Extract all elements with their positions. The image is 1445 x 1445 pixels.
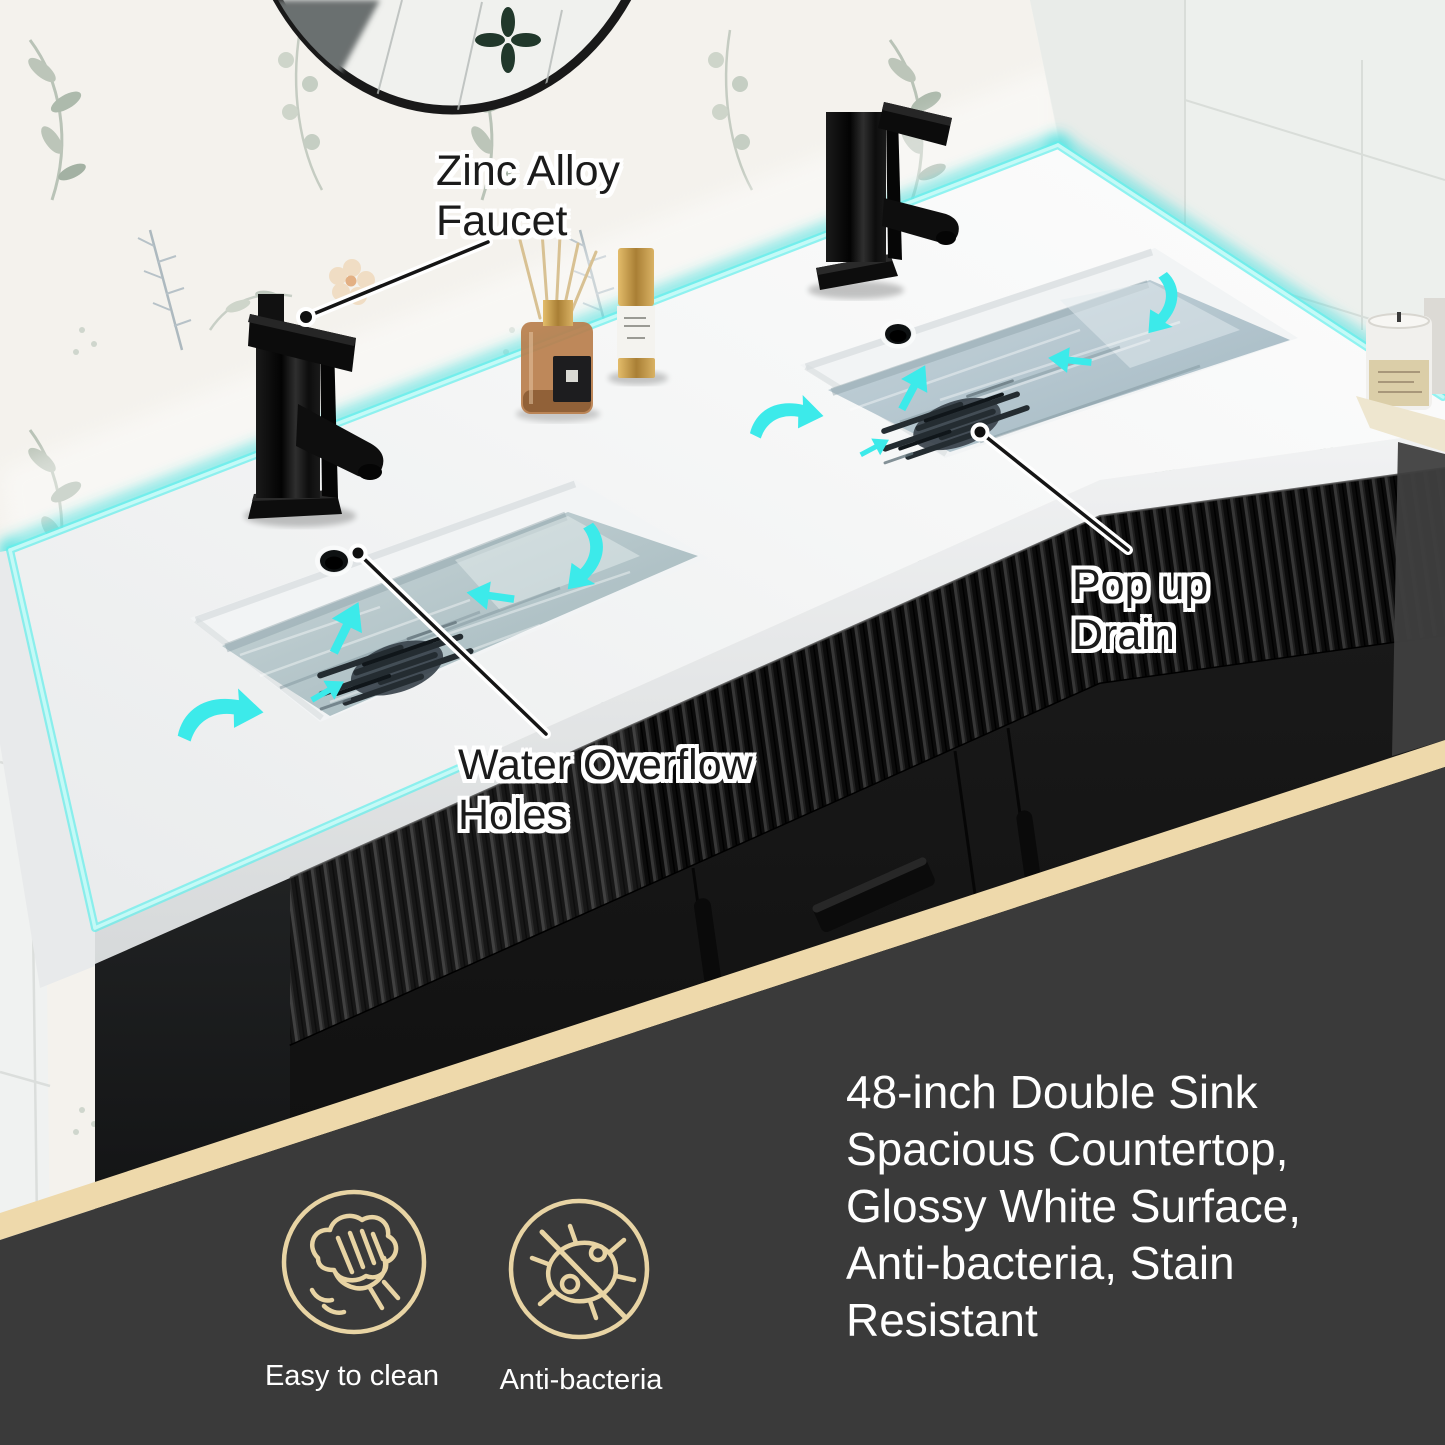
overflow-hole-right — [882, 322, 914, 347]
overflow-hole-left — [317, 548, 351, 575]
leader-dot-overflow — [351, 546, 366, 561]
leader-dot-faucet — [298, 309, 314, 325]
leader-dot-drain — [973, 425, 988, 440]
product-feature-image: Zinc Alloy Faucet Water Overflow Holes P… — [0, 0, 1445, 1445]
bathroom-photo — [0, 0, 1445, 1445]
